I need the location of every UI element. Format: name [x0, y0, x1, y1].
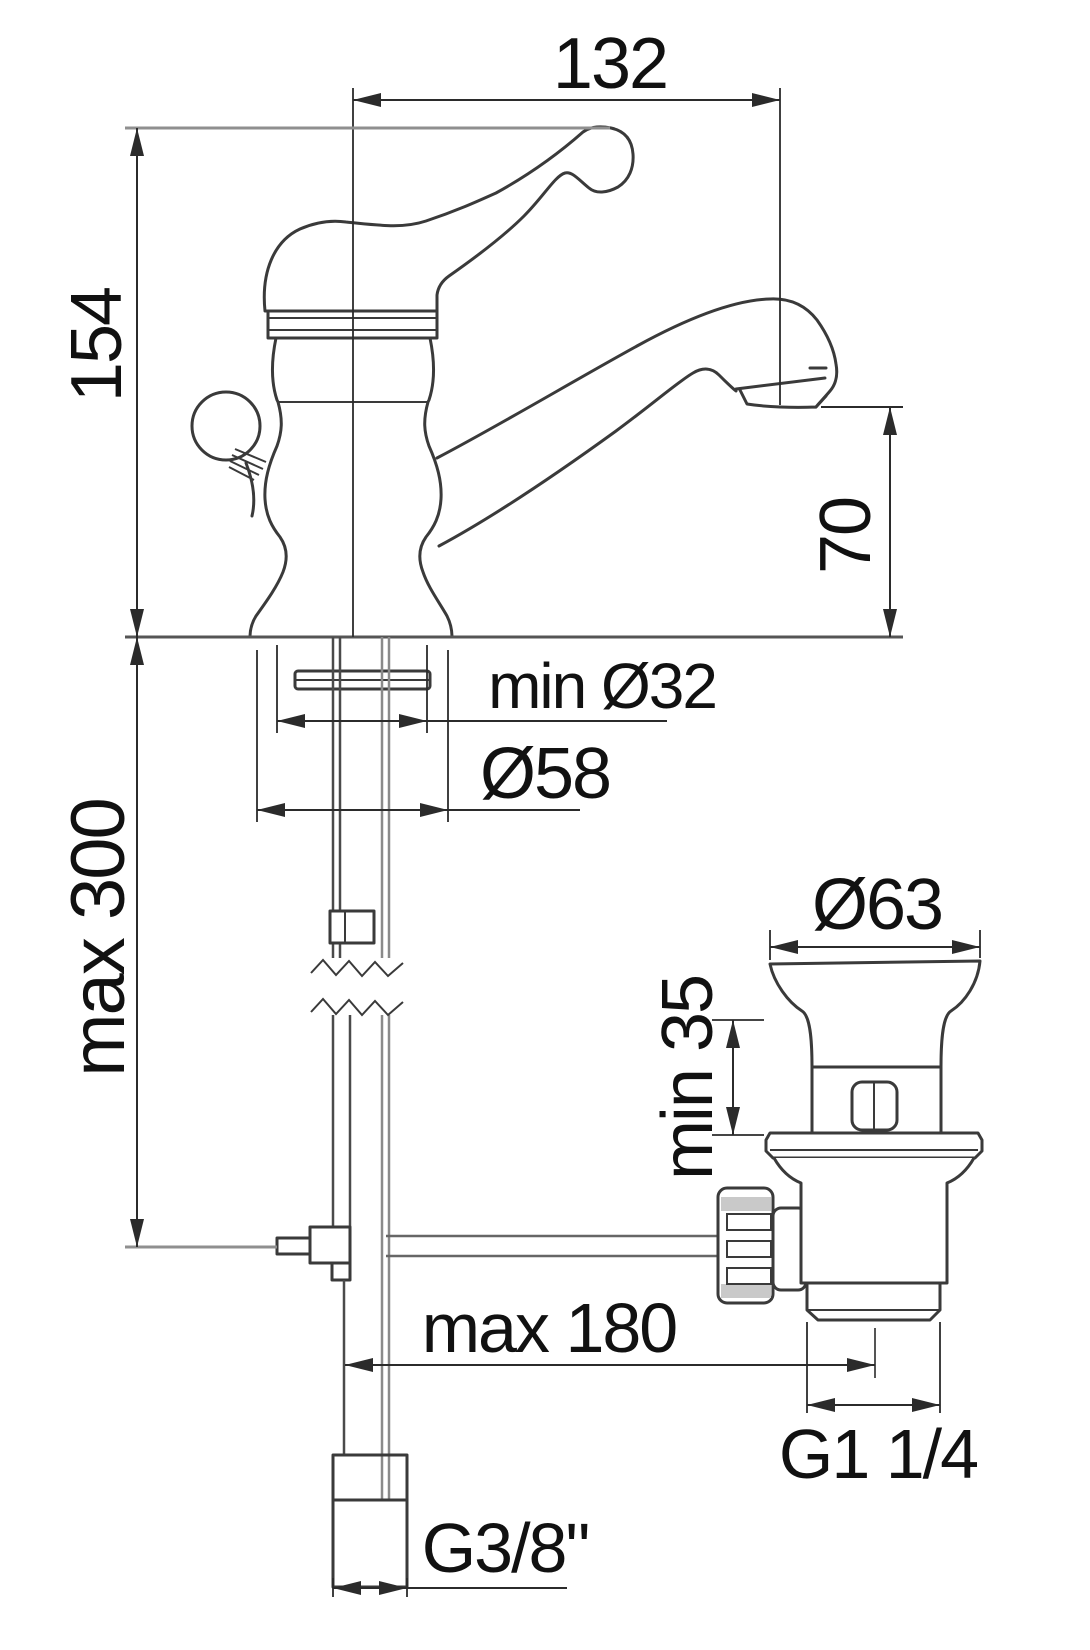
- dimension-70: 70: [806, 407, 903, 637]
- ext-lines-g114: [807, 1322, 940, 1413]
- waste-threaded-outlet: [807, 1283, 940, 1320]
- faucet-outline: [192, 127, 837, 637]
- dimensions-layer: 132 154 70 min Ø32 Ø58: [56, 24, 980, 1597]
- waste-top-cup: [770, 961, 980, 1067]
- dim-label-supply-thread: G3/8": [422, 1509, 589, 1587]
- technical-drawing-canvas: 132 154 70 min Ø32 Ø58: [0, 0, 1090, 1650]
- knurl-shade-bottom: [721, 1284, 771, 1298]
- dim-label-total-height: 154: [57, 288, 137, 402]
- supply-fitting-body: [333, 1500, 407, 1587]
- popup-waste-assembly: [718, 961, 982, 1378]
- rod-connector-step: [332, 1263, 350, 1280]
- dimension-g1-1-4: G1 1/4: [779, 1322, 977, 1493]
- dim-label-base-diameter: Ø58: [480, 734, 610, 814]
- dimension-max-300: max 300: [56, 637, 277, 1247]
- dimension-max-180: max 180: [345, 1289, 875, 1372]
- dim-label-deck-min-thickness: min 35: [648, 976, 728, 1180]
- supply-pipe: [382, 637, 389, 1500]
- dimension-min-35: min 35: [648, 976, 764, 1180]
- dim-label-waste-flange-diameter: Ø63: [812, 865, 942, 945]
- spout-upper-curve: [437, 299, 837, 458]
- break-symbol: [311, 960, 403, 1015]
- faucet-body: [250, 338, 452, 637]
- rod-connector-stub: [277, 1238, 310, 1254]
- dim-label-mounting-hole: min Ø32: [488, 650, 716, 722]
- spout-aerator: [736, 368, 826, 407]
- rod-hex-nut: [330, 911, 374, 943]
- faucet-dimension-drawing: 132 154 70 min Ø32 Ø58: [0, 0, 1090, 1650]
- horizontal-lever-rod: [386, 1236, 718, 1256]
- spout-lower-curve: [439, 369, 736, 546]
- supply-fitting-nut: [333, 1455, 407, 1500]
- dim-label-waste-thread: G1 1/4: [779, 1415, 977, 1493]
- handle-lever: [264, 127, 633, 311]
- dim-label-spout-outlet-height: 70: [806, 498, 886, 574]
- waste-flange: [766, 1133, 982, 1158]
- dim-label-supply-max-length: max 300: [56, 799, 141, 1077]
- dimension-63: Ø63: [770, 865, 980, 960]
- dim-label-spout-projection: 132: [553, 24, 667, 104]
- dim-label-rod-max-reach: max 180: [422, 1289, 677, 1367]
- waste-lower-body: [774, 1158, 974, 1283]
- rod-connector-block: [310, 1227, 350, 1263]
- popup-pull-knob: [192, 392, 260, 460]
- knurl-shade-top: [721, 1197, 771, 1211]
